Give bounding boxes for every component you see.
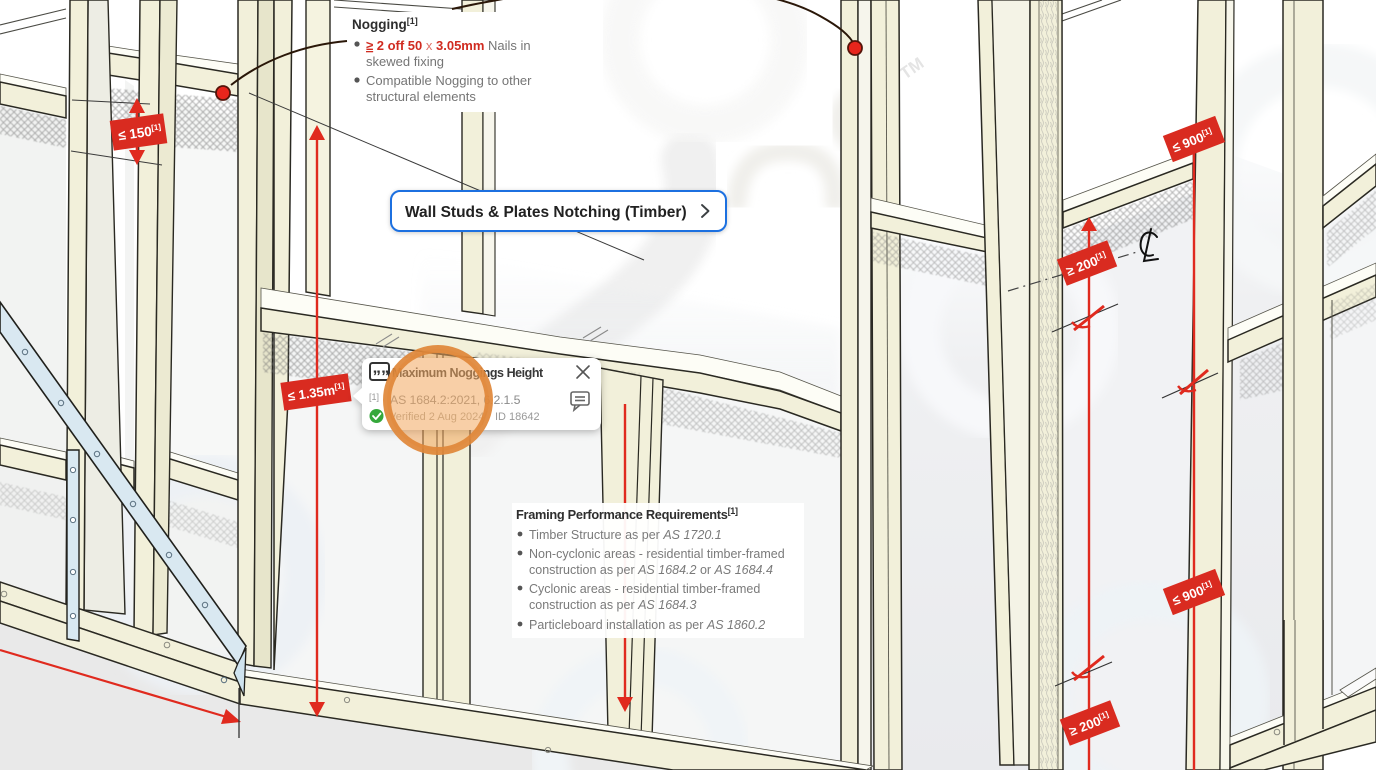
svg-text:Particleboard installation as: Particleboard installation as per AS 186… (529, 618, 765, 632)
svg-text:structural elements: structural elements (366, 89, 476, 104)
svg-text:Wall Studs & Plates Notching (: Wall Studs & Plates Notching (Timber) (405, 204, 687, 221)
svg-text:Timber Structure as per AS 172: Timber Structure as per AS 1720.1 (529, 528, 722, 542)
svg-text:Framing Performance Requiremen: Framing Performance Requirements[1] (516, 506, 738, 522)
svg-text:construction as per AS 1684.2: construction as per AS 1684.2 or AS 1684… (529, 563, 773, 577)
svg-text:construction as per AS 1684.3: construction as per AS 1684.3 (529, 598, 697, 612)
svg-text:≥ 2 off 50 x 3.05mm Nails in: ≥ 2 off 50 x 3.05mm Nails in (366, 38, 531, 53)
svg-text:ID 18642: ID 18642 (495, 411, 540, 423)
svg-text:Compatible Nogging to other: Compatible Nogging to other (366, 73, 532, 88)
svg-text:Non-cyclonic areas - residenti: Non-cyclonic areas - residential timber-… (529, 547, 785, 561)
svg-text:Cyclonic areas - residential t: Cyclonic areas - residential timber-fram… (529, 582, 760, 596)
svg-text:skewed fixing: skewed fixing (366, 54, 444, 69)
svg-text:[1]: [1] (369, 392, 379, 402)
